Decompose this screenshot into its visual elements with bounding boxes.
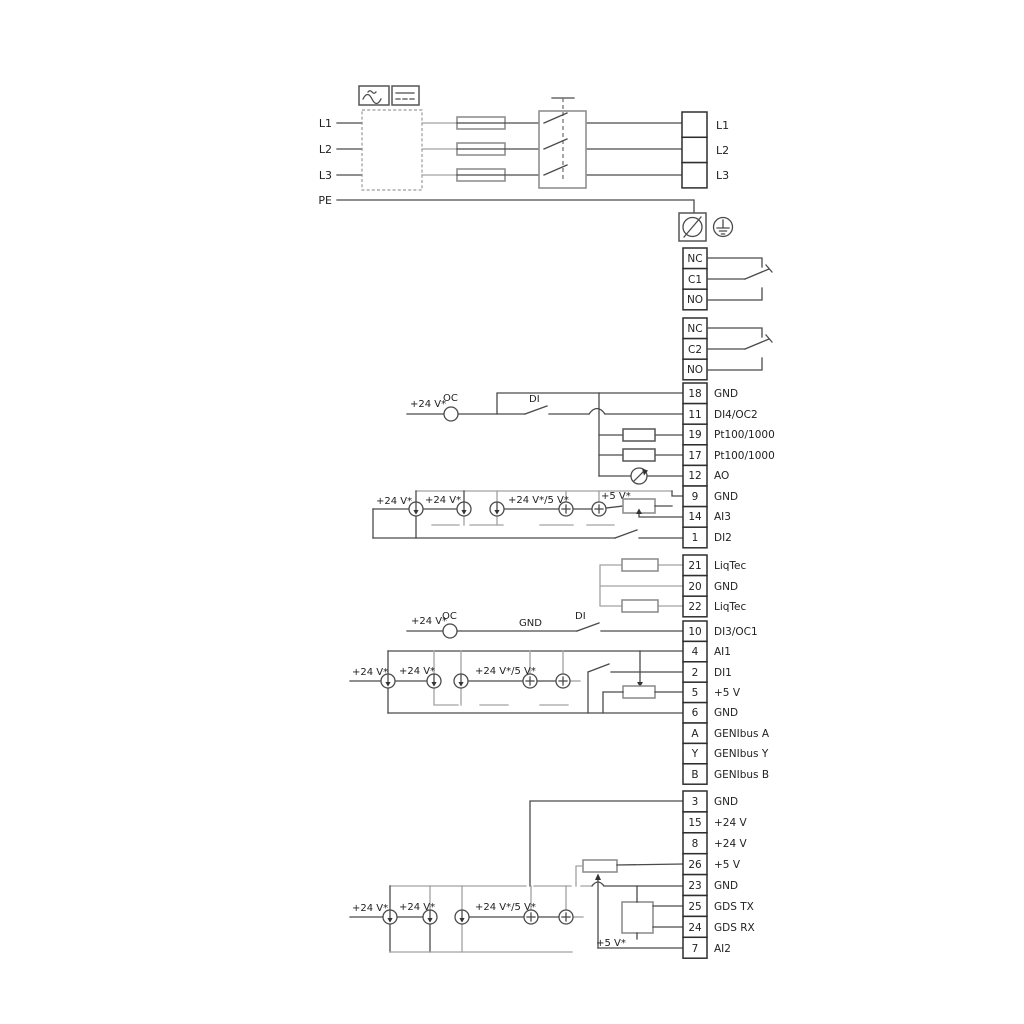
- mains-in-label-l1: L1: [319, 117, 332, 130]
- terminal-label: AI3: [714, 511, 731, 523]
- mains-section: L1 L2 L3 PE L1 L2 L3: [318, 86, 732, 241]
- terminal-number: 26: [688, 859, 702, 871]
- terminal-number: 14: [688, 511, 702, 523]
- relay1-contact: [707, 258, 772, 300]
- terminal-number: 17: [688, 450, 701, 462]
- terminal-number: Y: [691, 748, 699, 760]
- terminal-label: DI3/OC1: [714, 626, 758, 638]
- relay2-nc: NC: [687, 323, 702, 335]
- terminal-number: 5: [692, 687, 699, 699]
- sensor-group-ai1: +24 V* +24 V* +24 V*/5 V*: [350, 651, 683, 713]
- pt100-sensor-2: [623, 449, 655, 461]
- relay2-contact: [707, 328, 772, 370]
- sensor-plus-icon: [556, 674, 570, 688]
- mains-out-label-l2: L2: [716, 144, 729, 157]
- relay2-block: NC C2 NO: [683, 318, 772, 380]
- terminal-label: LiqTec: [714, 560, 747, 572]
- di-label: DI: [529, 394, 540, 405]
- io3-wiring: +24 V* OC GND DI +24 V* +24 V*: [350, 611, 683, 713]
- terminal-number: 10: [688, 626, 701, 638]
- terminal-number: 19: [688, 429, 701, 441]
- terminal-number: B: [691, 769, 698, 781]
- ac-wave-icon: [359, 86, 389, 105]
- plus24v-or-5v-label: +24 V*/5 V*: [475, 902, 536, 913]
- plus24v-label: +24 V*: [425, 495, 461, 506]
- sensor-group-ai2: +24 V* +24 V* +24 V*/5 V*: [350, 886, 583, 952]
- terminal-number: 25: [688, 901, 701, 913]
- plus24v-label: +24 V*: [410, 399, 446, 410]
- terminal-number: 11: [688, 409, 701, 421]
- oc-label: OC: [442, 611, 457, 622]
- plus24v-label: +24 V*: [399, 902, 435, 913]
- io3-terminal-block: 10 4 2 5 6 A Y B DI3/OC1 AI1 DI1 +5 V GN…: [683, 621, 770, 784]
- terminal-label: +5 V: [714, 687, 741, 699]
- terminal-label: GDS TX: [714, 901, 754, 913]
- liqtec-wiring: [600, 559, 683, 612]
- terminal-label: GND: [714, 796, 738, 808]
- terminal-label: GENIbus Y: [714, 748, 769, 760]
- potentiometer: [583, 860, 617, 872]
- fuse-l2: [457, 143, 505, 155]
- terminal-number: 24: [688, 922, 702, 934]
- terminal-number: 7: [692, 943, 699, 955]
- wiring-diagram: L1 L2 L3 PE L1 L2 L3 NC C1 NO NC C2 NO: [0, 0, 1024, 1024]
- mains-terminal-block: [682, 112, 707, 188]
- relay2-c2: C2: [688, 344, 702, 356]
- terminal-number: 22: [688, 601, 701, 613]
- terminal-label: GDS RX: [714, 922, 755, 934]
- terminal-number: 4: [692, 646, 699, 658]
- terminal-label: GND: [714, 491, 738, 503]
- sensor-plus-icon: [592, 502, 606, 516]
- liqtec-sensor-1: [622, 559, 658, 571]
- mains-in-label-l3: L3: [319, 169, 332, 182]
- liqtec-terminal-block: 21 20 22 LiqTec GND LiqTec: [683, 555, 747, 617]
- terminal-label: DI4/OC2: [714, 409, 758, 421]
- terminal-label: DI1: [714, 667, 732, 679]
- dc-icon: [392, 86, 419, 105]
- io4-terminal-block: 3 15 8 26 23 25 24 7 GND +24 V +24 V +5 …: [683, 791, 755, 958]
- mains-wires: [337, 123, 682, 175]
- terminal-label: LiqTec: [714, 601, 747, 613]
- terminal-number: 2: [692, 667, 699, 679]
- terminal-label: AI2: [714, 943, 731, 955]
- terminal-number: 3: [692, 796, 699, 808]
- liqtec-sensor-2: [622, 600, 658, 612]
- terminal-number: 9: [692, 491, 699, 503]
- relay1-nc: NC: [687, 253, 702, 265]
- terminal-number: 1: [692, 532, 699, 544]
- terminal-label: +5 V: [714, 859, 741, 871]
- terminal-number: 8: [692, 838, 699, 850]
- fuse-l3: [457, 169, 505, 181]
- terminal-label: AO: [714, 470, 729, 482]
- plus24v-label: +24 V*: [376, 496, 412, 507]
- potentiometer: [623, 499, 683, 517]
- terminal-number: 15: [688, 817, 701, 829]
- mains-in-label-l2: L2: [319, 143, 332, 156]
- terminal-label: GND: [714, 880, 738, 892]
- io4-wiring: +5 V* +24 V* +24 V* +24 V*/5 V*: [350, 801, 683, 952]
- current-sink-icon: [455, 910, 469, 924]
- current-sink-icon: [454, 674, 468, 688]
- terminal-label: GND: [714, 581, 738, 593]
- wiring-diagram-page: L1 L2 L3 PE L1 L2 L3 NC C1 NO NC C2 NO: [0, 0, 1024, 1024]
- terminal-number: 21: [688, 560, 701, 572]
- potentiometer: [623, 686, 655, 698]
- terminal-number: 12: [688, 470, 701, 482]
- screw-terminal-icon: [679, 213, 706, 241]
- main-switch: [539, 98, 586, 188]
- plus24v-label: +24 V*: [399, 666, 435, 677]
- fuse-l1: [457, 117, 505, 129]
- oc-label: OC: [443, 393, 458, 404]
- relay1-c1: C1: [688, 274, 702, 286]
- terminal-label: GND: [714, 707, 738, 719]
- terminal-number: 18: [688, 388, 701, 400]
- terminal-number: 23: [688, 880, 701, 892]
- terminal-number: A: [691, 728, 699, 740]
- pe-wire: [337, 200, 694, 213]
- mains-out-label-l1: L1: [716, 119, 729, 132]
- emc-filter-box: [362, 110, 422, 190]
- plus5v-label: +5 V*: [596, 938, 626, 949]
- terminal-label: +24 V: [714, 817, 747, 829]
- terminal-label: DI2: [714, 532, 732, 544]
- pt100-sensor-1: [623, 429, 655, 441]
- current-sink-icon: [490, 502, 504, 516]
- terminal-label: Pt100/1000: [714, 450, 775, 462]
- sensor-plus-icon: [559, 910, 573, 924]
- sensor-group-ai3: +24 V* +24 V* +24 V*/5 V* +5 V*: [373, 491, 683, 538]
- relay1-no: NO: [687, 294, 703, 306]
- terminal-label: GENIbus A: [714, 728, 770, 740]
- plus24v-label: +24 V*: [352, 667, 388, 678]
- analog-output-meter-icon: [631, 468, 648, 484]
- relay2-no: NO: [687, 364, 703, 376]
- plus24v-or-5v-label: +24 V*/5 V*: [508, 495, 569, 506]
- terminal-label: GND: [714, 388, 738, 400]
- io1-terminal-block: 18 11 19 17 12 9 14 1 GND DI4/OC2 Pt100/…: [683, 383, 775, 548]
- pe-label: PE: [318, 194, 332, 207]
- terminal-label: Pt100/1000: [714, 429, 775, 441]
- mains-out-label-l3: L3: [716, 169, 729, 182]
- terminal-number: 20: [688, 581, 701, 593]
- terminal-label: AI1: [714, 646, 731, 658]
- plus24v-or-5v-label: +24 V*/5 V*: [475, 666, 536, 677]
- relay1-block: NC C1 NO: [683, 248, 772, 310]
- earth-ground-icon: [714, 218, 733, 237]
- terminal-label: +24 V: [714, 838, 747, 850]
- gnd-label: GND: [519, 618, 542, 629]
- gds-sensor-module: +5 V*: [596, 886, 683, 949]
- plus24v-label: +24 V*: [352, 903, 388, 914]
- io1-wiring: +24 V* OC DI: [373, 393, 683, 538]
- terminal-label: GENIbus B: [714, 769, 769, 781]
- terminal-number: 6: [692, 707, 699, 719]
- di-label: DI: [575, 611, 586, 622]
